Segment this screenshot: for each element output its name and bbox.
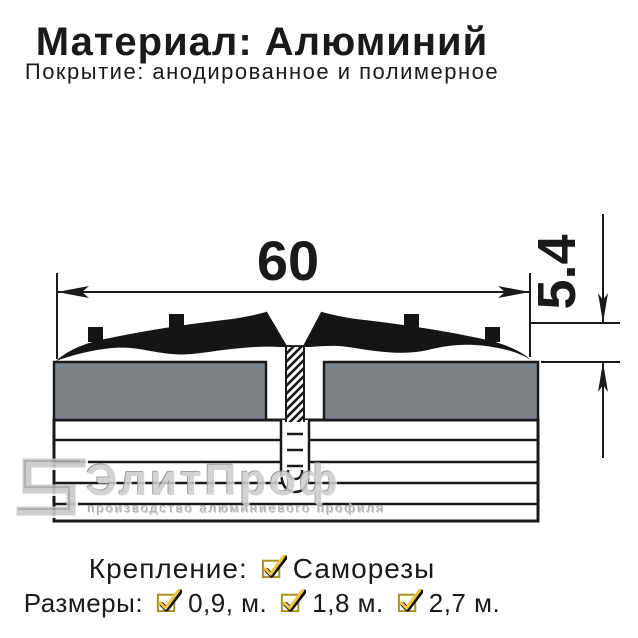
brand-tagline: производство алюминиевого профиля [88,501,386,516]
sizes-row: Размеры: 0,9, м. 1,8 м. 2,7 м. [0,588,524,619]
fastening-value: Саморезы [293,553,435,585]
height-dimension-label: 5.4 [527,234,587,309]
checkbox-checked-icon [396,587,423,614]
size-option: 2,7 м. [429,588,500,619]
sizes-label: Размеры: [24,588,143,619]
floor-panel-left [54,362,266,420]
profile-cross-section-drawing: 60 5.4 [0,0,638,638]
checkbox-checked-icon [155,587,182,614]
screw-shaft [286,344,304,422]
brand-watermark: ЭлитПроф [86,456,341,506]
size-option: 1,8 м. [312,588,383,619]
size-option: 0,9, м. [188,588,267,619]
checkbox-checked-icon [260,553,287,580]
fastening-row: Крепление: Саморезы [0,553,524,585]
width-dimension-label: 60 [257,229,319,292]
checkbox-checked-icon [279,587,306,614]
fastening-label: Крепление: [89,553,248,585]
brand-logo-icon [12,452,92,530]
floor-panel-right [324,362,538,420]
